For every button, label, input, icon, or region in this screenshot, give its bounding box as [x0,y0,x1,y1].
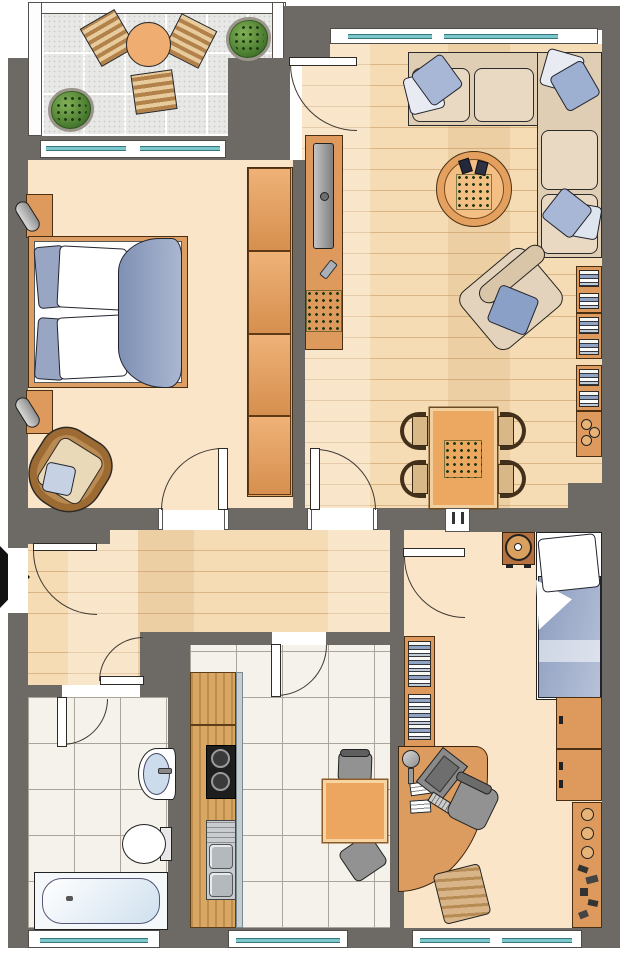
bed-pillow-white [56,245,127,310]
wardrobe [247,167,293,497]
wall-living-se-block [568,483,602,508]
books [408,641,431,687]
kitchen-door-leaf [271,644,281,697]
faucet-icon [158,768,172,774]
bowl [581,827,594,840]
countertop-edge [236,672,243,928]
books [579,293,599,309]
front-doorway [8,548,28,613]
door-jamb [445,508,470,532]
kids-pillow [537,533,600,593]
toy-icon [580,888,588,896]
counter-seam [190,724,236,726]
bedroom-window-glass [46,146,126,151]
sink-basin [209,872,233,897]
armchair-pillow [41,461,77,497]
dresser-knob [559,780,563,788]
bathtub-drain-icon [66,896,73,901]
balcony-door-arc [290,64,357,131]
wall-right [602,6,620,948]
door-jamb [224,508,229,530]
clock-center [514,543,522,551]
coffee-table-plant [456,174,492,210]
books [408,694,431,740]
wall-kids-north [470,508,602,532]
nightstand-foot [506,564,513,568]
dresser-seam [556,748,602,750]
sofa-cushion [474,68,534,122]
kids-room-door-leaf [403,548,465,557]
balcony-rail-right [272,2,284,60]
wall-top [330,6,602,30]
bedroom-window-glass2 [140,146,220,151]
burner-icon [211,749,230,768]
wall-left-lower [8,613,28,948]
desk-lamp-icon [402,750,420,768]
books [579,270,599,287]
wall-bath-corner-block [140,632,168,697]
door-jamb [307,508,312,530]
dining-table-plant [444,440,482,478]
kids-room-window-glass2 [502,938,572,943]
kitchen-chair-back [340,749,370,757]
bowl [581,846,594,859]
wall-bedroom-living-divider [293,160,305,510]
books [579,339,599,355]
balcony-chair [130,69,177,114]
door-jamb [158,508,163,530]
wall-hall-north-b [228,508,310,530]
houseplant [306,290,342,332]
duvet [118,238,182,388]
sink-basin [209,844,233,869]
wall-left-upper [8,58,28,548]
dresser-knob [559,716,563,724]
bathtub-basin [42,878,160,924]
toilet-bowl [122,824,166,864]
balcony-door-leaf [289,57,357,66]
books [579,369,599,386]
books [579,317,599,334]
bedroom-door-leaf [218,448,228,510]
living-room-window-glass2 [444,34,558,39]
door-hinge-mark [452,512,455,524]
nightstand-foot [524,564,531,568]
bathroom-door-leaf [100,676,144,685]
door-jamb [373,508,378,530]
bathroom-door-inner-leaf [57,697,67,747]
living-room-door-leaf [310,448,320,510]
wall-balcony-mass [228,58,290,136]
wall-top-left-corner [284,6,330,62]
bowl [581,435,592,446]
bed-pillow-white [56,314,127,379]
books [579,391,599,407]
wall-hall-north-a [8,508,162,530]
kids-room-window-glass [420,938,490,943]
kids-duvet-band [539,640,600,662]
sofa-cushion [541,130,598,190]
bathroom-window-glass [40,938,148,943]
burner-icon [211,772,230,791]
door-hinge-mark [461,512,464,524]
wall-kitchen-north-b [326,632,390,645]
balcony-rail-left [28,2,42,136]
balcony-rail-top [28,2,286,14]
washbasin-bowl [143,753,170,795]
tv-stand [320,192,329,201]
wall-hall-north-c [376,508,445,530]
entry-door-leaf [33,543,97,551]
bowl [581,808,594,821]
dresser-knob [559,762,563,770]
kitchen-table [323,780,387,842]
living-room-window-glass [348,34,432,39]
desk-lamp-arm [408,768,414,784]
floor-plan [0,0,620,960]
kitchen-window-glass [236,938,340,943]
balcony-table [126,22,171,67]
wall-bath-north [28,685,62,697]
wall-entry-block [28,530,110,544]
